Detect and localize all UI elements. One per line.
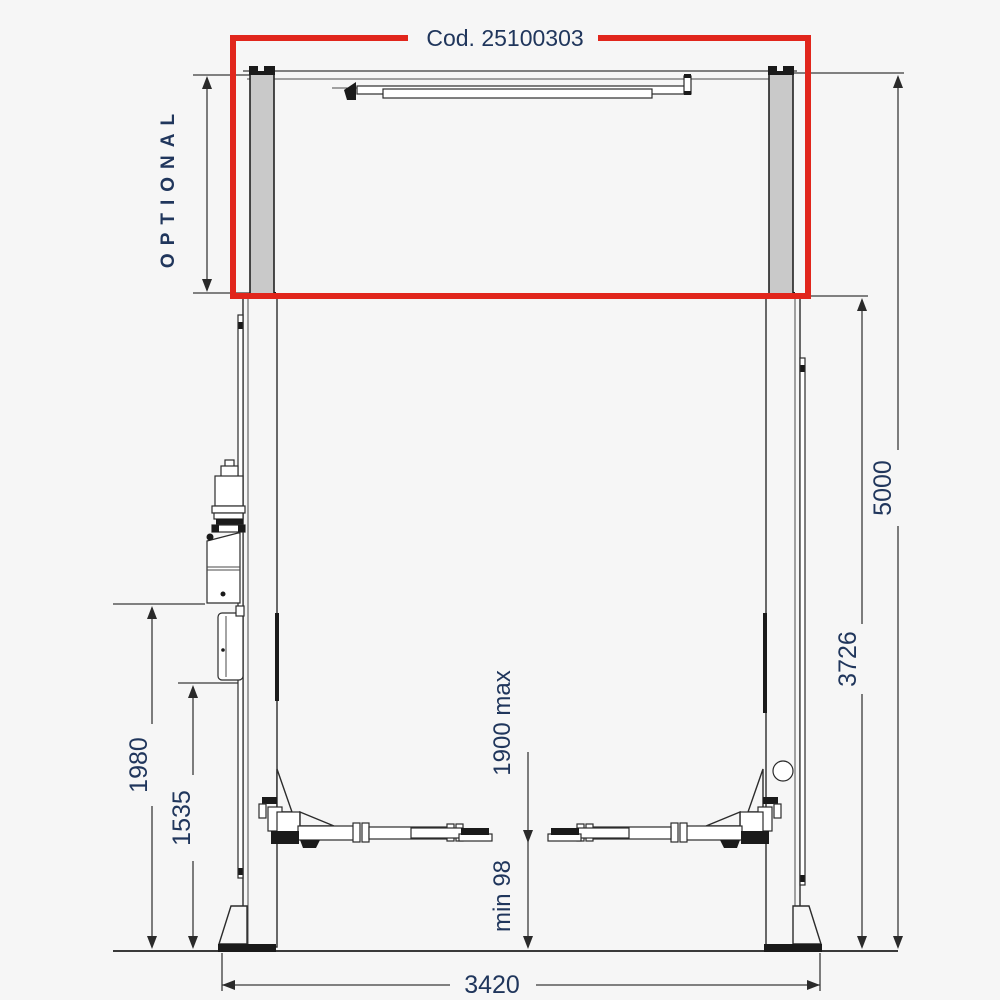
right-carriage-hook xyxy=(763,797,778,804)
power-unit xyxy=(207,460,246,603)
dim-label-min-98: min 98 xyxy=(489,860,516,932)
light-bar-tube xyxy=(383,89,652,98)
right-arm-segment-3 xyxy=(577,828,629,838)
dim-label-5000: 5000 xyxy=(869,460,897,516)
right-post-rail xyxy=(800,358,805,885)
dim-label-1900-max: 1900 max xyxy=(489,670,516,775)
right-arm xyxy=(548,769,781,848)
right-arm-pad xyxy=(551,828,579,835)
right-post-slider-track xyxy=(763,613,767,713)
lift-diagram-canvas: Cod. 25100303 OPTIONAL 5000 3726 1980 15… xyxy=(0,0,1000,1000)
optional-label: OPTIONAL xyxy=(158,106,179,268)
right-base-gusset xyxy=(793,906,821,944)
dim-label-1980: 1980 xyxy=(125,737,153,793)
right-base-plate xyxy=(764,944,822,952)
right-post-lock-knob xyxy=(773,761,793,781)
right-post xyxy=(763,292,822,952)
left-extension-post xyxy=(250,74,274,296)
left-base-plate xyxy=(218,944,276,952)
left-arm-segment-1 xyxy=(298,826,355,840)
left-base-gusset xyxy=(219,906,247,944)
dim-label-1535: 1535 xyxy=(168,790,196,846)
left-arm-pad xyxy=(461,828,489,835)
dimension-optional xyxy=(193,75,258,293)
dimension-3420 xyxy=(222,953,820,991)
dimension-lift-height xyxy=(523,752,533,949)
control-box xyxy=(218,606,244,680)
lift-technical-drawing: Cod. 25100303 OPTIONAL 5000 3726 1980 15… xyxy=(0,0,1000,1000)
optional-kit-highlight-box xyxy=(233,30,808,296)
optional-extension-kit xyxy=(249,66,794,296)
right-carriage-brace xyxy=(748,769,763,812)
right-extension-post xyxy=(769,74,793,296)
crossbar xyxy=(243,71,797,100)
left-carriage-hook xyxy=(262,797,277,804)
left-arm-segment-3 xyxy=(411,828,463,838)
dim-label-3420: 3420 xyxy=(464,971,520,999)
left-post-slider-track xyxy=(275,613,279,701)
dim-label-3726: 3726 xyxy=(834,631,862,687)
left-carriage xyxy=(277,812,300,833)
left-carriage-brace xyxy=(277,769,292,812)
right-arm-segment-1 xyxy=(685,826,742,840)
left-arm xyxy=(259,769,492,848)
motor-body xyxy=(215,476,243,506)
dimension-3726 xyxy=(808,296,868,949)
code-label: Cod. 25100303 xyxy=(426,25,583,51)
control-box-body xyxy=(218,613,243,680)
light-bar-left-bracket xyxy=(344,82,356,100)
right-carriage xyxy=(740,812,763,833)
